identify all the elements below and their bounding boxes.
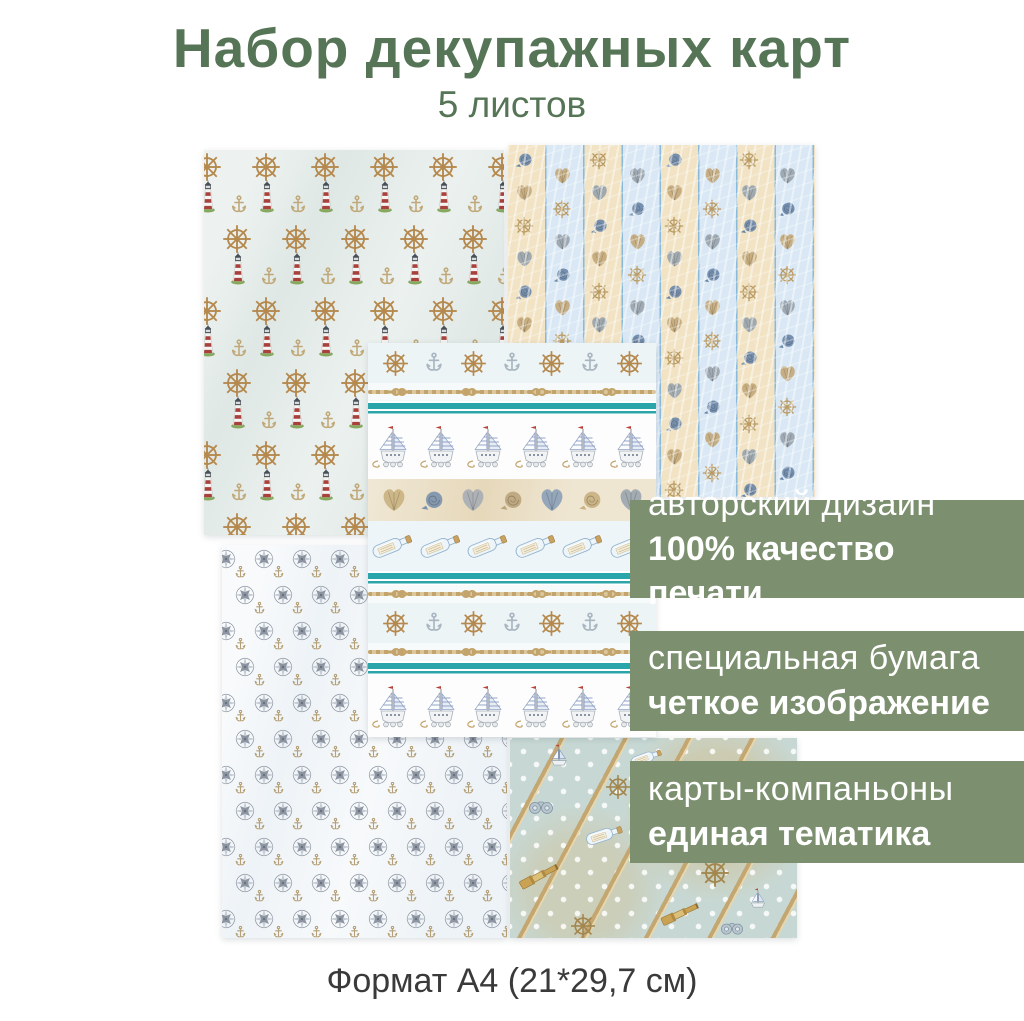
anchor-icon xyxy=(233,565,248,580)
anchor-icon xyxy=(385,853,400,868)
anchor-icon xyxy=(347,925,362,938)
lighthouse-icon xyxy=(405,252,425,285)
message-bottle-icon xyxy=(583,820,626,849)
snail-shell-icon xyxy=(814,282,815,301)
ship-wheel-icon xyxy=(340,512,370,535)
seashell-icon xyxy=(702,430,723,449)
seashell-icon xyxy=(589,183,610,202)
lighthouse-icon xyxy=(204,324,218,357)
snail-shell-icon xyxy=(814,150,815,169)
ship-wheel-icon xyxy=(204,152,222,182)
ship-wheel-icon xyxy=(310,440,340,470)
banner-line-bold: 100% качество печати xyxy=(648,527,1018,617)
border-band-rope xyxy=(368,643,656,661)
message-bottle-icon xyxy=(464,529,512,563)
ship-wheel-icon xyxy=(460,610,487,637)
snail-shell-icon xyxy=(777,463,798,482)
rope-knot-icon xyxy=(596,646,622,658)
ship-wheel-icon xyxy=(514,216,534,236)
ship-wheel-icon xyxy=(399,224,429,254)
seashell-icon xyxy=(777,232,798,251)
anchor-icon xyxy=(422,611,446,635)
snail-shell-icon xyxy=(627,199,648,218)
border-band-boats xyxy=(368,415,656,479)
anchor-icon xyxy=(309,637,324,652)
anchor-icon xyxy=(328,745,343,760)
feature-banner-paper: специальная бумага четкое изображение xyxy=(630,631,1024,731)
ship-wheel-icon xyxy=(222,224,252,254)
seashell-icon xyxy=(627,298,648,317)
border-band-motifs xyxy=(368,603,656,643)
seashell-icon xyxy=(814,315,815,334)
seashell-icon xyxy=(514,315,535,334)
lighthouse-icon xyxy=(228,252,248,285)
anchor-icon xyxy=(252,817,267,832)
sailboat-icon xyxy=(561,685,605,729)
ship-wheel-icon xyxy=(460,350,487,377)
anchor-icon xyxy=(309,565,324,580)
seashell-icon xyxy=(702,298,723,317)
anchor-icon xyxy=(494,266,504,288)
anchor-icon xyxy=(347,565,362,580)
sailboat-icon xyxy=(548,744,570,768)
anchor-icon xyxy=(290,601,305,616)
page-title: Набор декупажных карт xyxy=(0,16,1024,80)
anchor-icon xyxy=(442,889,457,904)
border-band-rope xyxy=(368,383,656,401)
border-band-teal xyxy=(368,401,656,415)
anchor-icon xyxy=(347,709,362,724)
banner-line-bold: четкое изображение xyxy=(648,681,1018,726)
anchor-icon xyxy=(228,482,250,504)
anchor-icon xyxy=(309,925,324,938)
rope-knot-icon xyxy=(386,588,412,600)
border-band-motifs xyxy=(368,343,656,383)
ship-wheel-icon xyxy=(281,368,311,398)
anchor-icon xyxy=(328,601,343,616)
message-bottle-icon xyxy=(512,529,560,563)
lighthouse-icon xyxy=(287,252,307,285)
decoupage-sheet-border-strips xyxy=(368,343,656,737)
banner-line-bold: единая тематика xyxy=(648,812,1018,857)
message-bottle-icon xyxy=(559,529,607,563)
seashell-icon xyxy=(514,183,535,202)
anchor-icon xyxy=(385,925,400,938)
anchor-icon xyxy=(578,351,602,375)
message-bottle-icon xyxy=(369,529,417,563)
anchor-icon xyxy=(461,925,476,938)
ship-wheel-icon xyxy=(702,331,722,351)
snail-shell-icon xyxy=(777,199,798,218)
sailboat-icon xyxy=(514,685,558,729)
border-band-teal xyxy=(368,661,656,675)
ship-wheel-icon xyxy=(222,512,252,535)
snail-shell-icon xyxy=(814,414,815,433)
page-subtitle: 5 листов xyxy=(0,84,1024,126)
anchor-icon xyxy=(405,194,427,216)
compass-rose-icon xyxy=(499,871,507,895)
ship-wheel-icon xyxy=(222,368,252,398)
anchor-icon xyxy=(404,745,419,760)
anchor-icon xyxy=(328,673,343,688)
anchor-icon xyxy=(252,745,267,760)
ship-wheel-icon xyxy=(739,150,759,170)
feature-banner-companions: карты-компаньоны единая тематика xyxy=(630,761,1024,863)
seashell-icon xyxy=(814,381,815,400)
ship-wheel-icon xyxy=(428,152,458,182)
anchor-icon xyxy=(233,925,248,938)
lighthouse-icon xyxy=(316,324,336,357)
anchor-icon xyxy=(328,889,343,904)
ship-wheel-icon xyxy=(538,350,565,377)
ship-wheel-icon xyxy=(570,913,596,938)
seashell-icon xyxy=(514,249,535,268)
binoculars-icon xyxy=(720,918,744,936)
rope-knot-icon xyxy=(526,386,552,398)
lighthouse-icon xyxy=(316,180,336,213)
ship-wheel-icon xyxy=(538,610,565,637)
anchor-icon xyxy=(385,781,400,796)
anchor-icon xyxy=(290,817,305,832)
banner-line-light: специальная бумага xyxy=(648,636,1018,681)
lighthouse-icon xyxy=(464,252,484,285)
ship-wheel-icon xyxy=(664,216,684,236)
snail-shell-icon xyxy=(739,216,760,235)
ship-wheel-icon xyxy=(204,440,222,470)
anchor-icon xyxy=(404,817,419,832)
ship-wheel-icon xyxy=(739,282,759,302)
anchor-icon xyxy=(252,889,267,904)
ship-wheel-icon xyxy=(369,296,399,326)
seashell-icon xyxy=(739,447,760,466)
seashell-icon xyxy=(814,183,815,202)
snail-shell-icon xyxy=(498,487,526,513)
sailboat-icon xyxy=(419,685,463,729)
ship-wheel-icon xyxy=(552,199,572,219)
anchor-icon xyxy=(435,266,457,288)
anchor-icon xyxy=(258,266,280,288)
seashell-icon xyxy=(664,381,685,400)
seashell-icon xyxy=(702,232,723,251)
anchor-icon xyxy=(309,853,324,868)
seashell-icon xyxy=(664,315,685,334)
snail-shell-icon xyxy=(577,487,605,513)
anchor-icon xyxy=(500,351,524,375)
lighthouse-icon xyxy=(346,396,366,429)
snail-shell-icon xyxy=(589,216,610,235)
seashell-icon xyxy=(589,249,610,268)
snail-shell-icon xyxy=(702,265,723,284)
ship-wheel-icon xyxy=(340,224,370,254)
lighthouse-icon xyxy=(316,468,336,501)
ship-wheel-icon xyxy=(605,774,631,800)
ship-wheel-icon xyxy=(428,296,458,326)
lighthouse-icon xyxy=(493,180,504,213)
sailboat-icon xyxy=(466,425,510,469)
border-band-shells xyxy=(368,479,656,521)
sailboat-icon xyxy=(609,425,653,469)
anchor-icon xyxy=(317,266,339,288)
telescope-icon xyxy=(659,898,702,929)
ship-wheel-icon xyxy=(382,350,409,377)
rope-knot-icon xyxy=(596,386,622,398)
rope-knot-icon xyxy=(456,386,482,398)
sailboat-icon xyxy=(514,425,558,469)
ship-wheel-icon xyxy=(589,150,609,170)
anchor-icon xyxy=(499,781,507,796)
seashell-icon xyxy=(777,364,798,383)
lighthouse-icon xyxy=(375,180,395,213)
anchor-icon xyxy=(578,611,602,635)
seashell-icon xyxy=(702,166,723,185)
lighthouse-icon xyxy=(257,468,277,501)
anchor-icon xyxy=(290,673,305,688)
sailboat-icon xyxy=(371,685,415,729)
rope-knot-icon xyxy=(526,646,552,658)
ship-wheel-icon xyxy=(702,199,722,219)
ship-wheel-icon xyxy=(739,414,759,434)
anchor-icon xyxy=(442,817,457,832)
seashell-icon xyxy=(458,486,488,514)
seashell-icon xyxy=(589,315,610,334)
banner-line-light: авторский дизайн xyxy=(648,482,1018,527)
sailboat-icon xyxy=(561,425,605,469)
binoculars-icon xyxy=(528,796,554,816)
anchor-icon xyxy=(309,709,324,724)
anchor-icon xyxy=(287,194,309,216)
feature-banner-design: авторский дизайн 100% качество печати xyxy=(630,500,1024,598)
lighthouse-icon xyxy=(346,252,366,285)
lighthouse-icon xyxy=(434,180,454,213)
anchor-icon xyxy=(233,853,248,868)
ship-wheel-icon xyxy=(340,368,370,398)
seashell-icon xyxy=(777,298,798,317)
ship-wheel-icon xyxy=(251,440,281,470)
border-band-bottles xyxy=(368,521,656,571)
seashell-icon xyxy=(627,166,648,185)
rope-knot-icon xyxy=(596,588,622,600)
lighthouse-icon xyxy=(204,180,218,213)
anchor-icon xyxy=(480,745,495,760)
anchor-icon xyxy=(271,565,286,580)
lighthouse-icon xyxy=(257,324,277,357)
message-bottle-icon xyxy=(417,529,465,563)
format-caption: Формат А4 (21*29,7 см) xyxy=(0,962,1024,1001)
rope-knot-icon xyxy=(456,646,482,658)
ship-wheel-icon xyxy=(369,152,399,182)
anchor-icon xyxy=(346,338,368,360)
anchor-icon xyxy=(290,889,305,904)
anchor-icon xyxy=(423,925,438,938)
snail-shell-icon xyxy=(664,150,685,169)
anchor-icon xyxy=(233,781,248,796)
anchor-icon xyxy=(366,745,381,760)
anchor-icon xyxy=(480,817,495,832)
product-promo-image: Набор декупажных карт 5 листов авторский… xyxy=(0,0,1024,1021)
seashell-icon xyxy=(777,166,798,185)
seashell-icon xyxy=(552,232,573,251)
ship-wheel-icon xyxy=(281,224,311,254)
anchor-icon xyxy=(404,889,419,904)
ship-wheel-icon xyxy=(310,152,340,182)
anchor-icon xyxy=(271,637,286,652)
anchor-icon xyxy=(271,853,286,868)
ship-wheel-icon xyxy=(777,265,797,285)
telescope-icon xyxy=(517,859,562,893)
ship-wheel-icon xyxy=(589,282,609,302)
ship-wheel-icon xyxy=(382,610,409,637)
ship-wheel-icon xyxy=(664,348,684,368)
seashell-icon xyxy=(739,183,760,202)
rope-knot-icon xyxy=(386,386,412,398)
seashell-icon xyxy=(664,249,685,268)
border-band-boats xyxy=(368,675,656,737)
anchor-icon xyxy=(500,611,524,635)
anchor-icon xyxy=(347,853,362,868)
snail-shell-icon xyxy=(664,282,685,301)
ship-wheel-icon xyxy=(814,348,815,368)
anchor-icon xyxy=(271,781,286,796)
anchor-icon xyxy=(347,781,362,796)
lighthouse-icon xyxy=(287,396,307,429)
ship-wheel-icon xyxy=(627,265,647,285)
seashell-icon xyxy=(814,447,815,466)
snail-shell-icon xyxy=(702,397,723,416)
seashell-icon xyxy=(379,486,409,514)
snail-shell-icon xyxy=(514,150,535,169)
anchor-icon xyxy=(499,925,507,938)
sailboat-icon xyxy=(419,425,463,469)
anchor-icon xyxy=(228,194,250,216)
compass-rose-icon xyxy=(499,799,507,823)
anchor-icon xyxy=(346,482,368,504)
anchor-icon xyxy=(287,482,309,504)
seashell-icon xyxy=(627,232,648,251)
anchor-icon xyxy=(442,745,457,760)
ship-wheel-icon xyxy=(251,152,281,182)
anchor-icon xyxy=(309,781,324,796)
ship-wheel-icon xyxy=(281,512,311,535)
seashell-icon xyxy=(664,447,685,466)
lighthouse-icon xyxy=(204,468,218,501)
ship-wheel-icon xyxy=(251,296,281,326)
anchor-icon xyxy=(366,817,381,832)
anchor-icon xyxy=(252,673,267,688)
seashell-icon xyxy=(552,166,573,185)
anchor-icon xyxy=(233,637,248,652)
anchor-icon xyxy=(423,781,438,796)
sailboat-icon xyxy=(371,425,415,469)
seashell-icon xyxy=(777,430,798,449)
anchor-icon xyxy=(423,853,438,868)
banner-line-light: карты-компаньоны xyxy=(648,767,1018,812)
anchor-icon xyxy=(461,781,476,796)
anchor-icon xyxy=(271,925,286,938)
anchor-icon xyxy=(347,637,362,652)
anchor-icon xyxy=(480,889,495,904)
seashell-icon xyxy=(702,364,723,383)
border-band-rope xyxy=(368,585,656,603)
seashell-icon xyxy=(739,315,760,334)
rope-knot-icon xyxy=(456,588,482,600)
ship-wheel-icon xyxy=(814,216,815,236)
anchor-icon xyxy=(328,817,343,832)
ship-wheel-icon xyxy=(310,296,340,326)
rope-knot-icon xyxy=(526,588,552,600)
ship-wheel-icon xyxy=(702,463,722,483)
anchor-icon xyxy=(366,889,381,904)
seashell-icon xyxy=(739,249,760,268)
rope-knot-icon xyxy=(386,646,412,658)
anchor-icon xyxy=(290,745,305,760)
anchor-icon xyxy=(287,338,309,360)
lighthouse-icon xyxy=(257,180,277,213)
anchor-icon xyxy=(376,266,398,288)
seashell-icon xyxy=(739,381,760,400)
snail-shell-icon xyxy=(514,282,535,301)
snail-shell-icon xyxy=(419,487,447,513)
seashell-icon xyxy=(664,183,685,202)
anchor-icon xyxy=(317,410,339,432)
anchor-icon xyxy=(271,709,286,724)
snail-shell-icon xyxy=(739,348,760,367)
anchor-icon xyxy=(252,601,267,616)
snail-shell-icon xyxy=(664,414,685,433)
seashell-icon xyxy=(814,249,815,268)
anchor-icon xyxy=(464,194,486,216)
lighthouse-icon xyxy=(228,396,248,429)
ship-wheel-icon xyxy=(487,152,504,182)
seashell-icon xyxy=(552,298,573,317)
ship-wheel-icon xyxy=(458,224,488,254)
ship-wheel-icon xyxy=(204,296,222,326)
anchor-icon xyxy=(499,853,507,868)
sailboat-icon xyxy=(466,685,510,729)
ship-wheel-icon xyxy=(777,397,797,417)
anchor-icon xyxy=(233,709,248,724)
snail-shell-icon xyxy=(777,331,798,350)
anchor-icon xyxy=(258,410,280,432)
ship-wheel-icon xyxy=(487,296,504,326)
border-band-teal xyxy=(368,571,656,585)
snail-shell-icon xyxy=(552,265,573,284)
anchor-icon xyxy=(228,338,250,360)
anchor-icon xyxy=(461,853,476,868)
sailboat-icon xyxy=(748,888,768,910)
anchor-icon xyxy=(346,194,368,216)
ship-wheel-icon xyxy=(616,350,643,377)
anchor-icon xyxy=(422,351,446,375)
seashell-icon xyxy=(537,486,567,514)
